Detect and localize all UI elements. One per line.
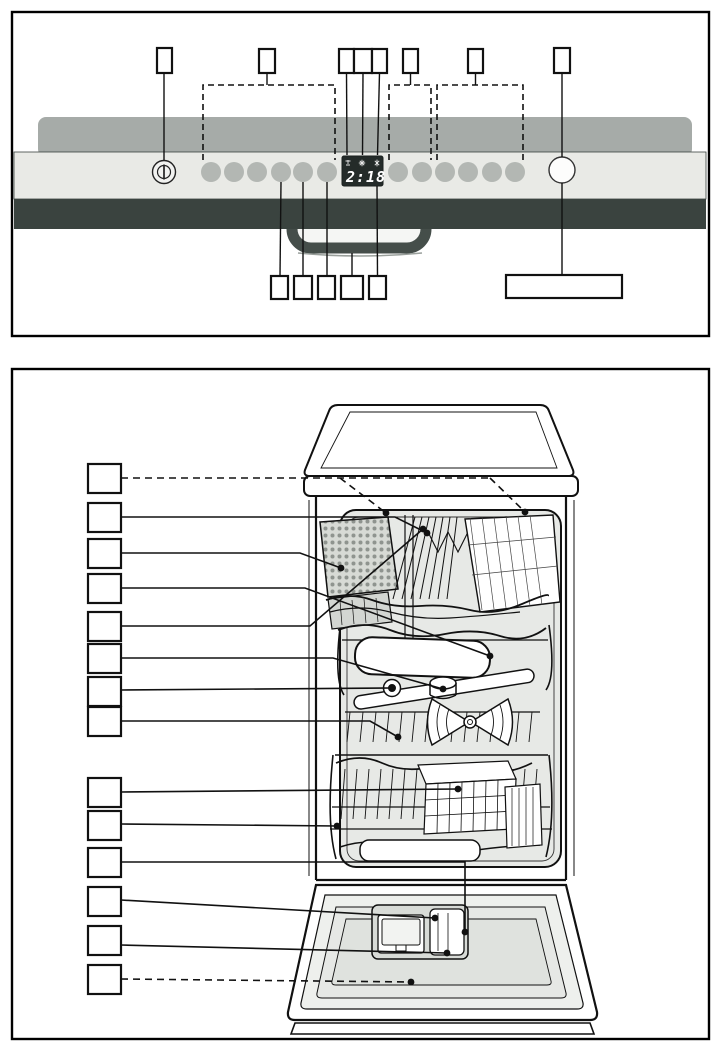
callout-box-7 xyxy=(88,677,121,706)
front-band xyxy=(14,199,706,229)
callout-box-bottom-wide xyxy=(506,275,622,298)
callout-box-6 xyxy=(88,644,121,673)
callout-box-top-7 xyxy=(468,49,483,73)
callout-box-top-1 xyxy=(157,48,172,73)
callout-box-10 xyxy=(88,811,121,840)
manual-figure-page: 2:18 xyxy=(0,0,721,1051)
start-button-drawing xyxy=(549,157,575,183)
spray-duct-plate xyxy=(354,637,490,679)
slotted-insert xyxy=(505,784,542,848)
basket-handle-plate xyxy=(360,840,480,861)
callout-box-bottom-3 xyxy=(318,276,335,299)
dispenser-latch xyxy=(396,945,406,951)
callout-box-top-4 xyxy=(354,49,372,73)
dispenser-lid xyxy=(382,919,420,945)
callout-box-5 xyxy=(88,612,121,641)
door-edge xyxy=(291,1023,594,1034)
callout-box-top-2 xyxy=(259,49,275,73)
callout-box-bottom-2 xyxy=(294,276,312,299)
interior-callout-boxes xyxy=(88,464,121,994)
display: 2:18 xyxy=(342,156,386,186)
callout-box-1 xyxy=(88,464,121,493)
appliance-top-edge xyxy=(38,117,692,157)
callout-box-12 xyxy=(88,887,121,916)
callout-box-2 xyxy=(88,503,121,532)
callout-box-14 xyxy=(88,965,121,994)
callout-box-bottom-1 xyxy=(271,276,288,299)
callout-box-bottom-4 xyxy=(341,276,363,299)
power-icon xyxy=(153,161,176,184)
cutlery-basket xyxy=(418,761,516,834)
callout-box-3 xyxy=(88,539,121,568)
callout-box-bottom-5 xyxy=(369,276,386,299)
callout-box-11 xyxy=(88,848,121,877)
control-panel-figure: 2:18 xyxy=(10,10,711,338)
callout-box-top-8 xyxy=(554,48,570,73)
callout-box-top-3 xyxy=(339,49,354,73)
knobbed-insert xyxy=(320,517,398,597)
callout-box-8 xyxy=(88,707,121,736)
callout-box-4 xyxy=(88,574,121,603)
callout-box-top-6 xyxy=(403,49,418,73)
callout-box-top-5 xyxy=(372,49,387,73)
callout-box-13 xyxy=(88,926,121,955)
interior-figure xyxy=(10,367,711,1041)
display-value: 2:18 xyxy=(345,168,386,186)
callout-box-9 xyxy=(88,778,121,807)
